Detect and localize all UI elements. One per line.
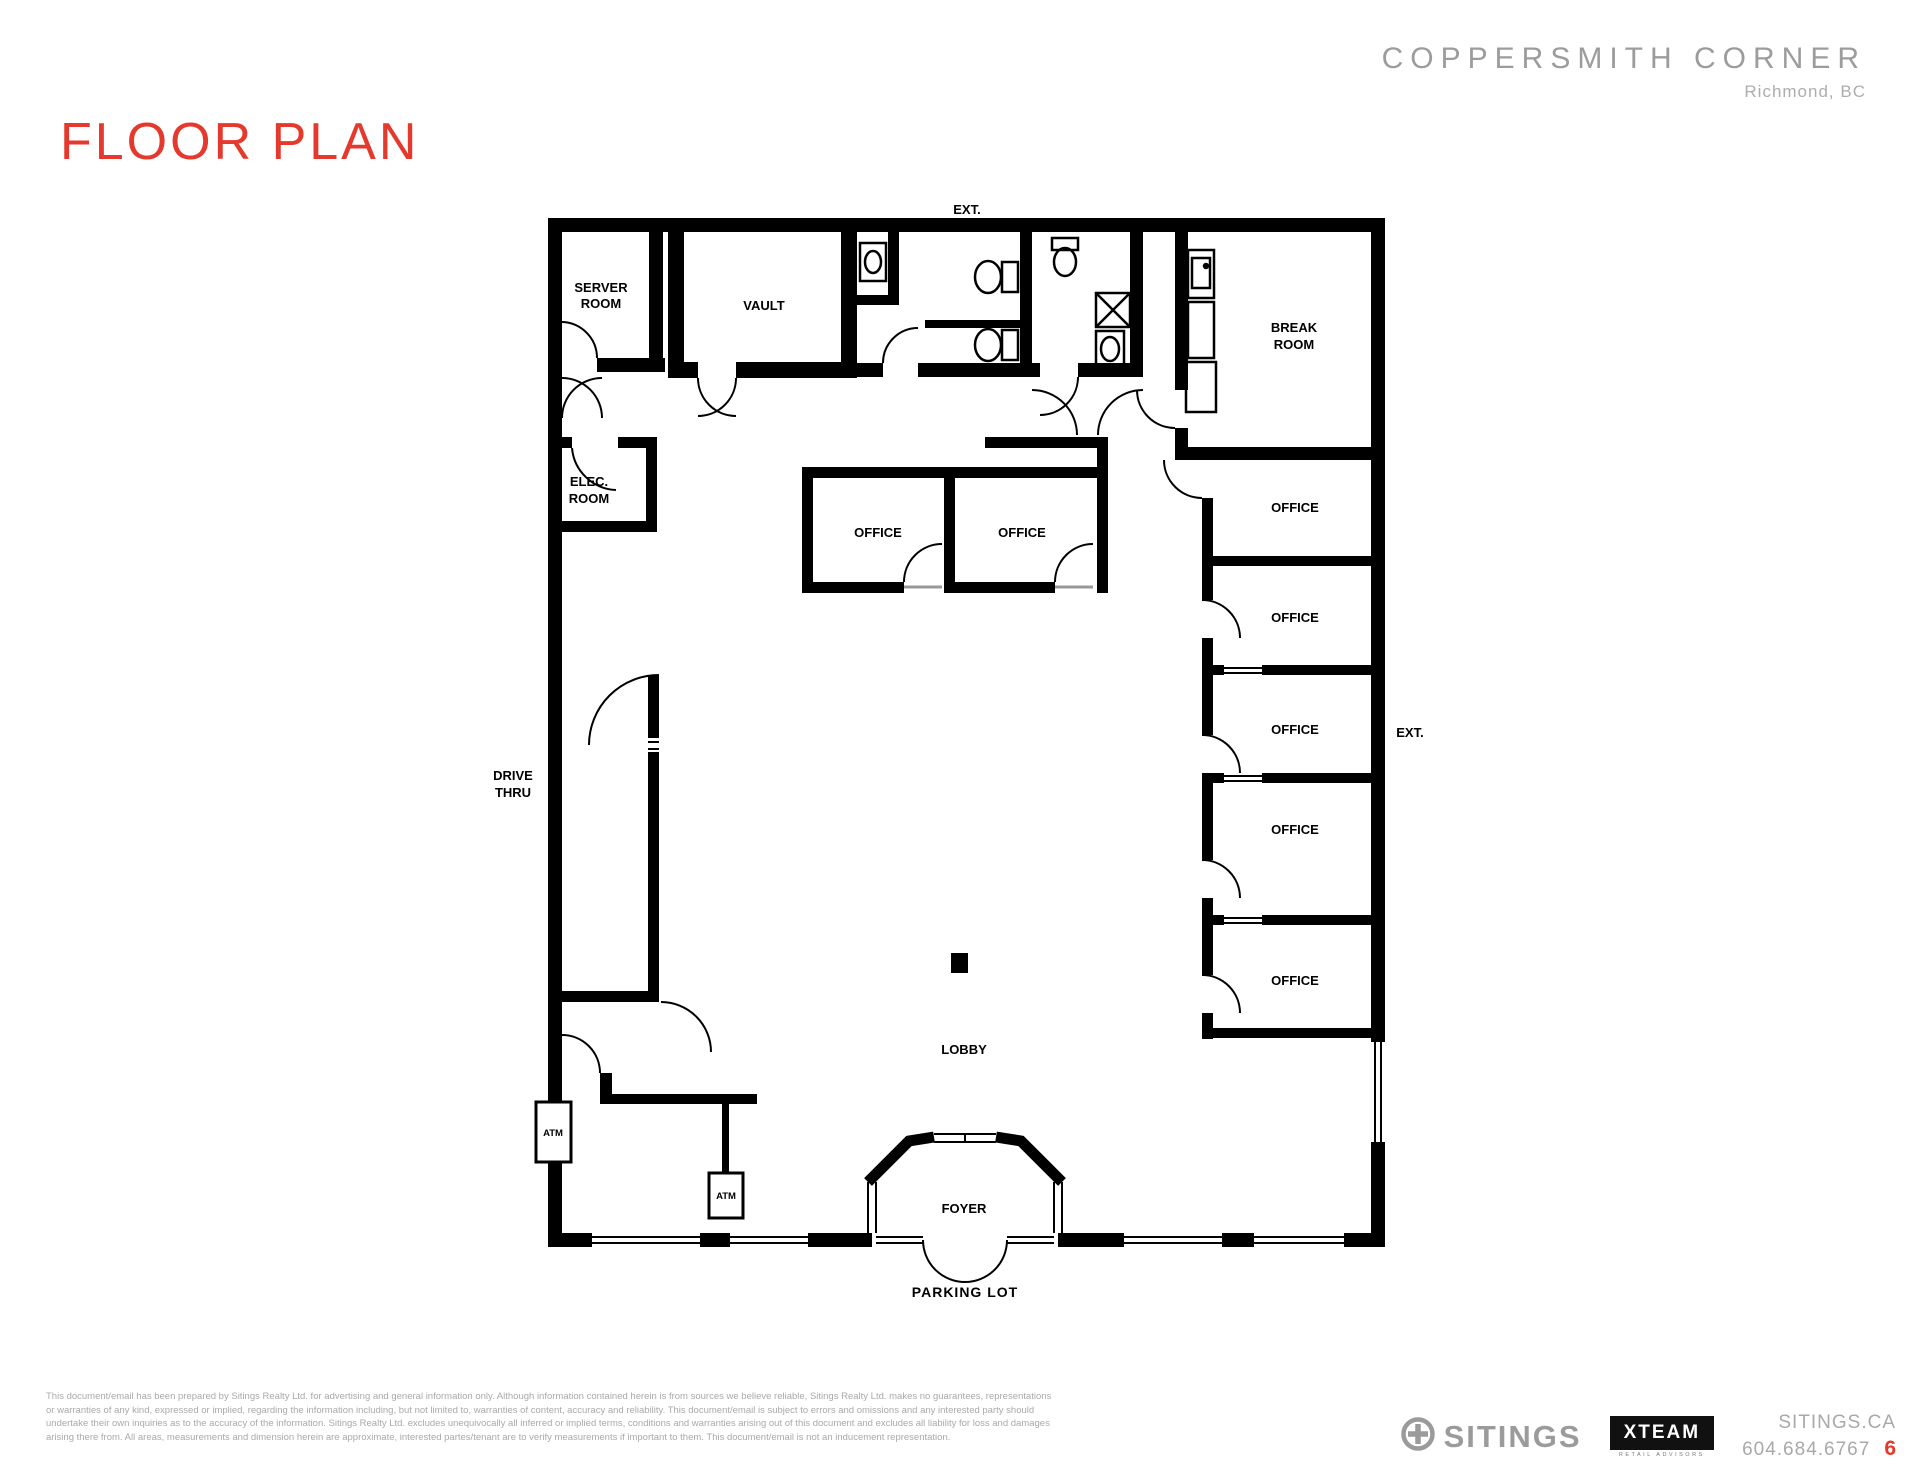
washroom-fixtures [860, 238, 1130, 367]
break-room-counter [1186, 250, 1216, 412]
walls [548, 218, 1385, 1247]
website-text: SITINGS.CA [1742, 1412, 1896, 1434]
label-parking-lot: PARKING LOT [912, 1284, 1018, 1300]
floor-plan: EXT. SERVER ROOM VAULT BREAK ROOM ELEC. … [0, 0, 1920, 1484]
sink-icon [1096, 331, 1124, 367]
toilet-icon [1052, 238, 1078, 276]
xteam-tagline: RETAIL ADVISORS [1619, 1452, 1705, 1458]
label-office-right-5: OFFICE [1271, 973, 1319, 988]
label-office-mid-left: OFFICE [854, 525, 902, 540]
logo-cluster: SITINGS XTEAM RETAIL ADVISORS SITINGS.CA… [1400, 1412, 1896, 1461]
label-ext-top: EXT. [953, 202, 980, 217]
phone-text: 604.684.6767 [1742, 1439, 1870, 1461]
label-office-right-2: OFFICE [1271, 610, 1319, 625]
sitings-circle-plus-icon [1400, 1416, 1436, 1457]
shower-icon [1096, 293, 1130, 327]
label-lobby: LOBBY [941, 1042, 987, 1057]
page-number: 6 [1884, 1437, 1896, 1461]
label-office-mid-right: OFFICE [998, 525, 1046, 540]
label-break-room-1: BREAK [1271, 320, 1318, 335]
label-office-right-3: OFFICE [1271, 722, 1319, 737]
sitings-logo: SITINGS [1400, 1416, 1582, 1457]
disclaimer-line: undertake their own inquiries as to the … [46, 1417, 1104, 1431]
label-drive-thru-1: DRIVE [493, 768, 533, 783]
label-vault: VAULT [743, 298, 784, 313]
label-server-room-1: SERVER [574, 280, 628, 295]
xteam-logo: XTEAM RETAIL ADVISORS [1610, 1416, 1715, 1458]
label-ext-right: EXT. [1396, 725, 1423, 740]
disclaimer-line: or warranties of any kind, expressed or … [46, 1404, 1104, 1418]
label-drive-thru-2: THRU [495, 785, 531, 800]
disclaimer-line: This document/email has been prepared by… [46, 1390, 1104, 1404]
label-foyer: FOYER [942, 1201, 987, 1216]
label-office-right-4: OFFICE [1271, 822, 1319, 837]
sitings-wordmark: SITINGS [1444, 1419, 1582, 1455]
door-swings [561, 322, 1240, 1073]
label-server-room-2: ROOM [581, 296, 621, 311]
toilet-icon [975, 329, 1018, 361]
label-elec-room-1: ELEC. [570, 474, 608, 489]
toilet-icon [975, 261, 1018, 293]
label-atm-lobby: ATM [716, 1191, 736, 1202]
disclaimer-line: arising there from. All areas, measureme… [46, 1431, 1104, 1445]
disclaimer-text: This document/email has been prepared by… [46, 1390, 1104, 1444]
sink-icon [860, 243, 886, 281]
label-atm-left: ATM [543, 1128, 563, 1139]
contact-block: SITINGS.CA 604.684.6767 6 [1742, 1412, 1896, 1461]
atm-machines [536, 1102, 743, 1218]
footer: This document/email has been prepared by… [46, 1390, 1896, 1461]
windows [592, 664, 1381, 1243]
label-elec-room-2: ROOM [569, 491, 609, 506]
label-office-right-1: OFFICE [1271, 500, 1319, 515]
xteam-wordmark: XTEAM [1610, 1416, 1715, 1450]
label-break-room-2: ROOM [1274, 337, 1314, 352]
